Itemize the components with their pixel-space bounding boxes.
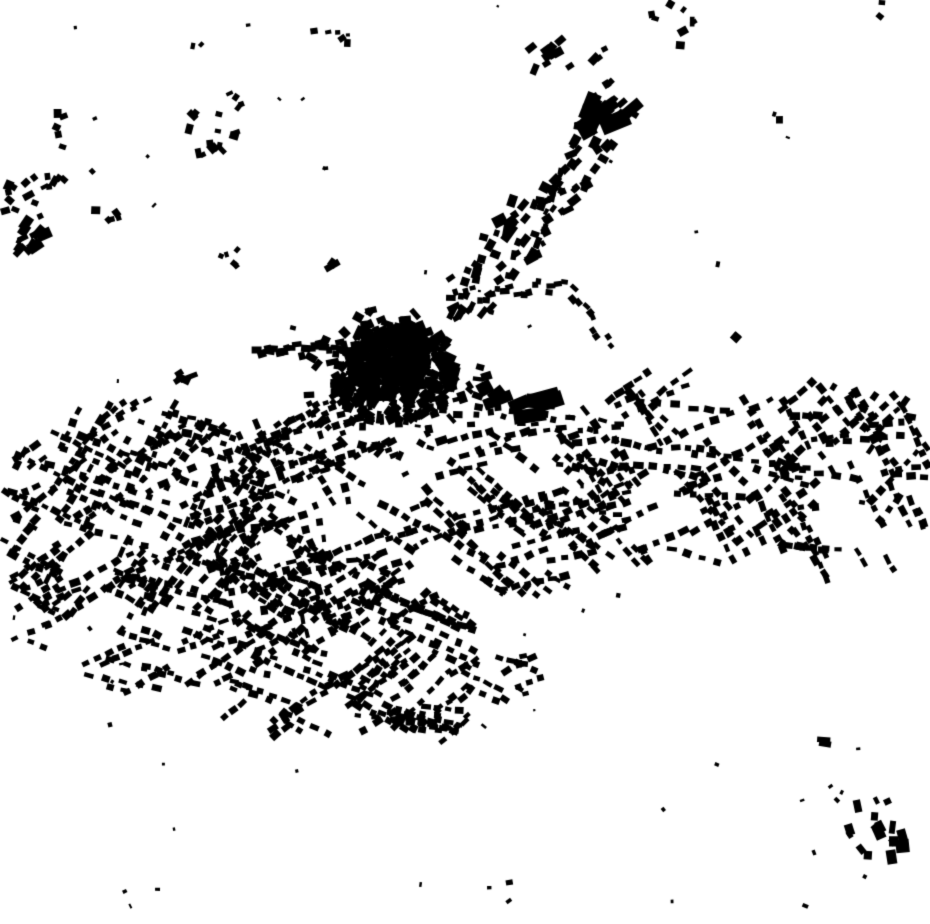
map-canvas — [0, 0, 930, 924]
figure-ground-map — [0, 0, 930, 924]
